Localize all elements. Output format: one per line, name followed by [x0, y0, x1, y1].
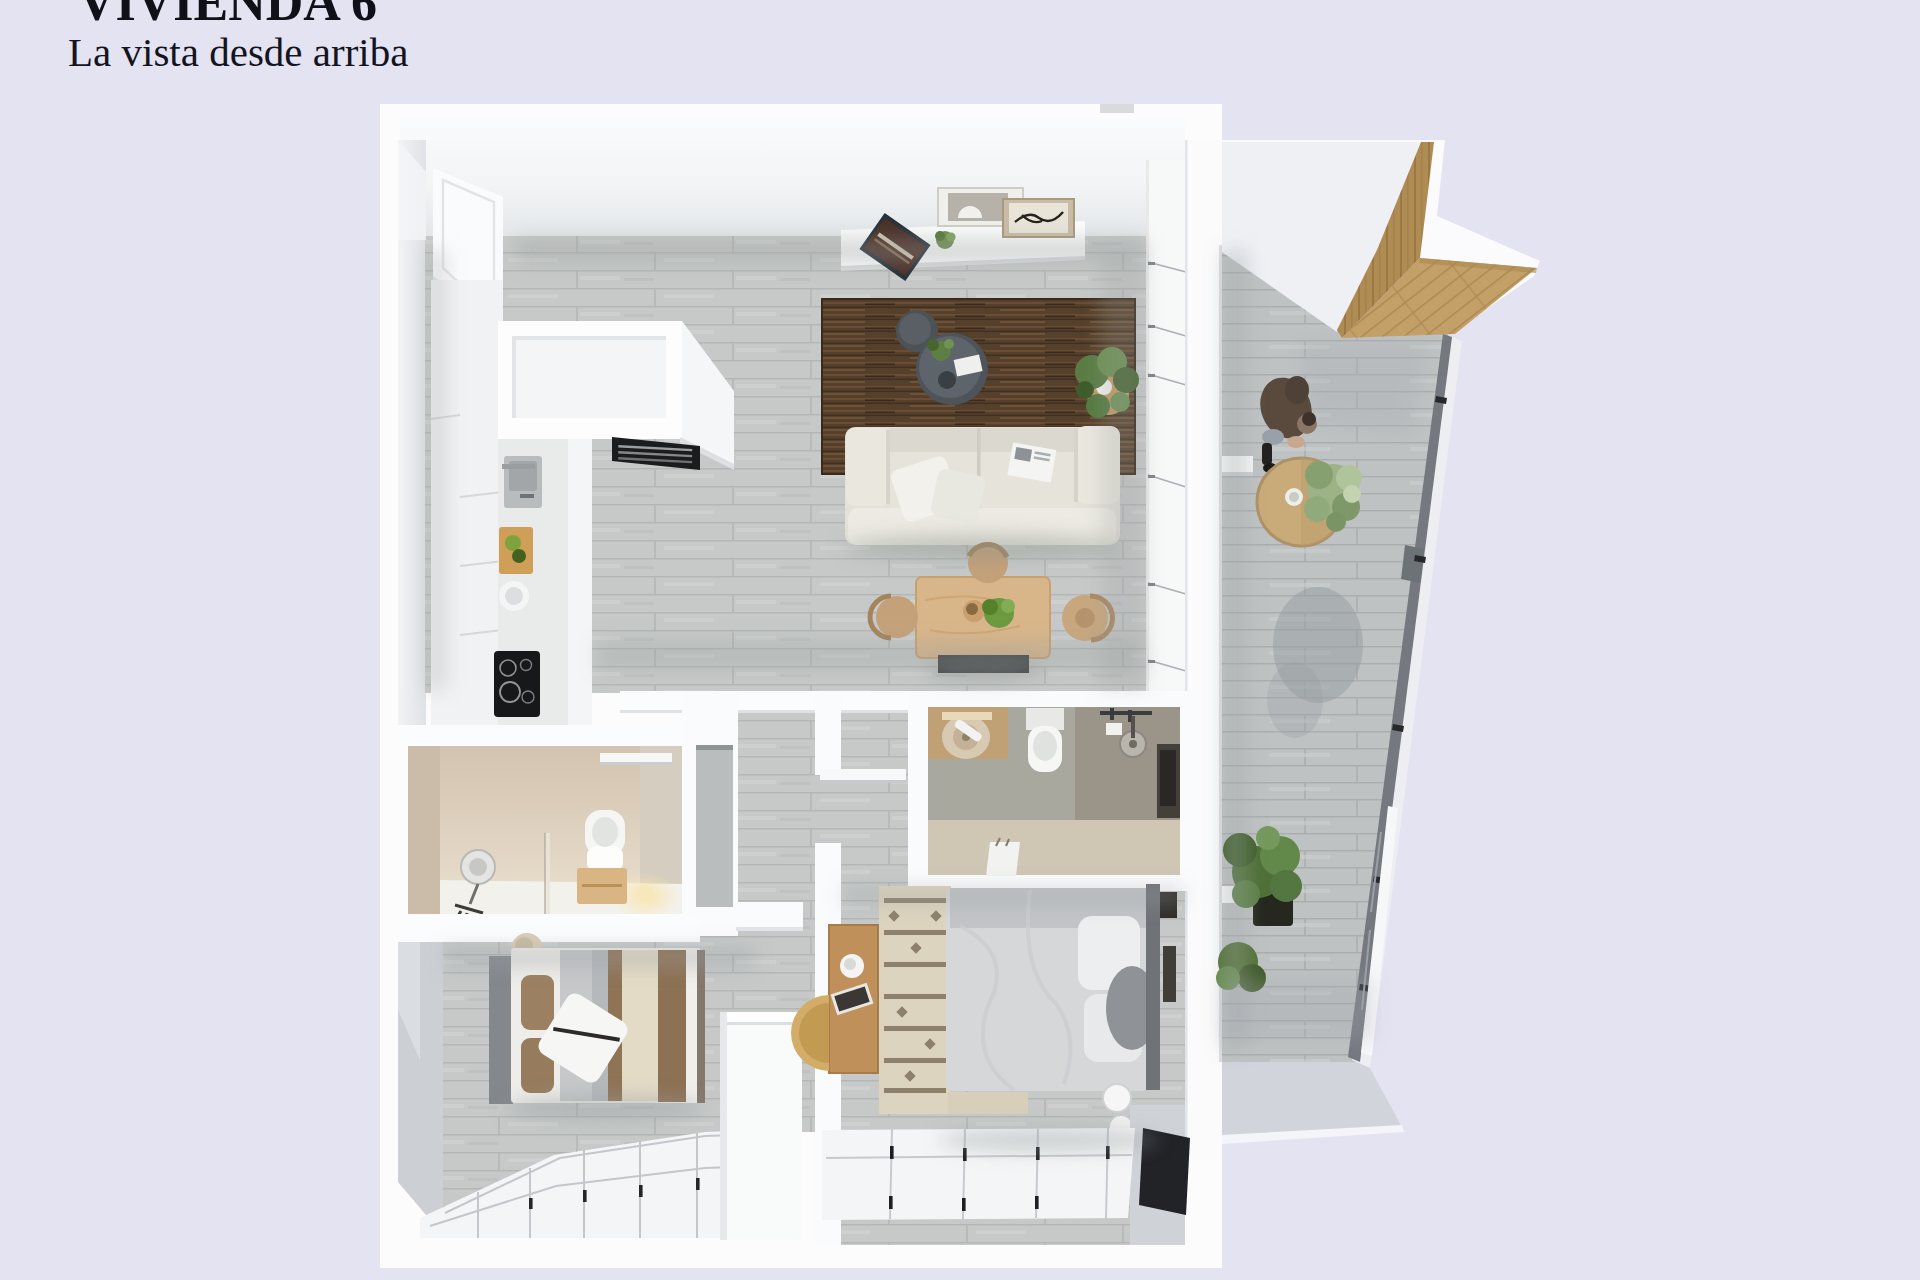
- svg-text:La vista desde arriba: La vista desde arriba: [68, 29, 408, 75]
- svg-text:VIVIENDA 6: VIVIENDA 6: [78, 0, 377, 31]
